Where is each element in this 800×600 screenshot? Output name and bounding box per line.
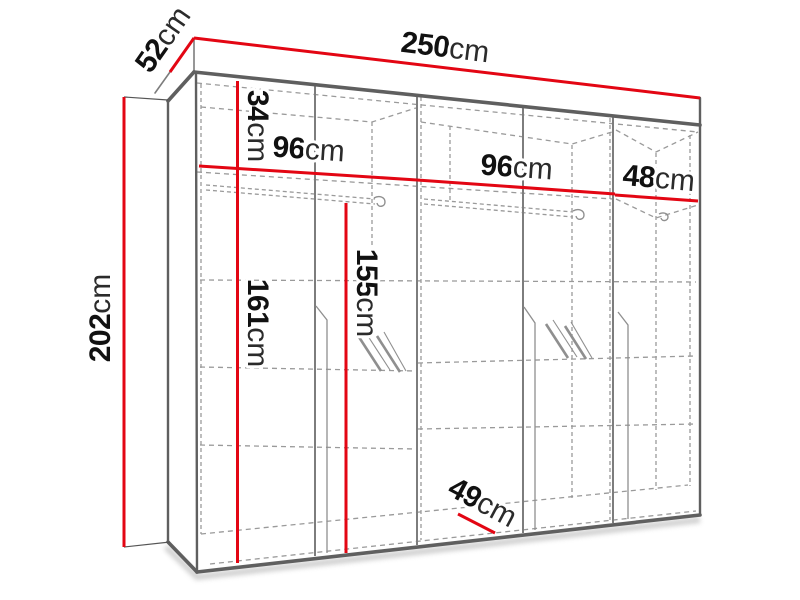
label-section-middle: 96cm xyxy=(479,149,554,187)
label-interior-depth: 49cm xyxy=(443,471,522,534)
mirror-glint-icon xyxy=(546,320,592,359)
floor-shadow xyxy=(166,520,700,577)
door-edge-reflection xyxy=(524,307,535,530)
dimension-labels: 250cm 52cm 202cm 34cm 96cm 96cm 48cm 161… xyxy=(84,0,696,534)
label-height: 202cm xyxy=(84,274,117,363)
label-top-compartment: 34cm xyxy=(241,90,274,162)
rail-hook-icon xyxy=(374,197,385,207)
wardrobe-dimension-diagram: 250cm 52cm 202cm 34cm 96cm 96cm 48cm 161… xyxy=(0,0,800,600)
diagram-canvas: 250cm 52cm 202cm 34cm 96cm 96cm 48cm 161… xyxy=(0,0,800,600)
door-edge-reflection xyxy=(618,312,628,519)
label-interior-rail-height: 155cm xyxy=(350,249,383,338)
label-section-left: 96cm xyxy=(271,131,346,169)
label-depth: 52cm xyxy=(129,0,198,78)
door-edge-reflection xyxy=(316,306,327,553)
hanging-rails xyxy=(206,185,668,221)
rail-hook-icon xyxy=(573,210,584,220)
dimension-line-section-left xyxy=(199,166,417,180)
label-section-right: 48cm xyxy=(621,159,696,198)
label-interior-left-height: 161cm xyxy=(241,279,274,368)
